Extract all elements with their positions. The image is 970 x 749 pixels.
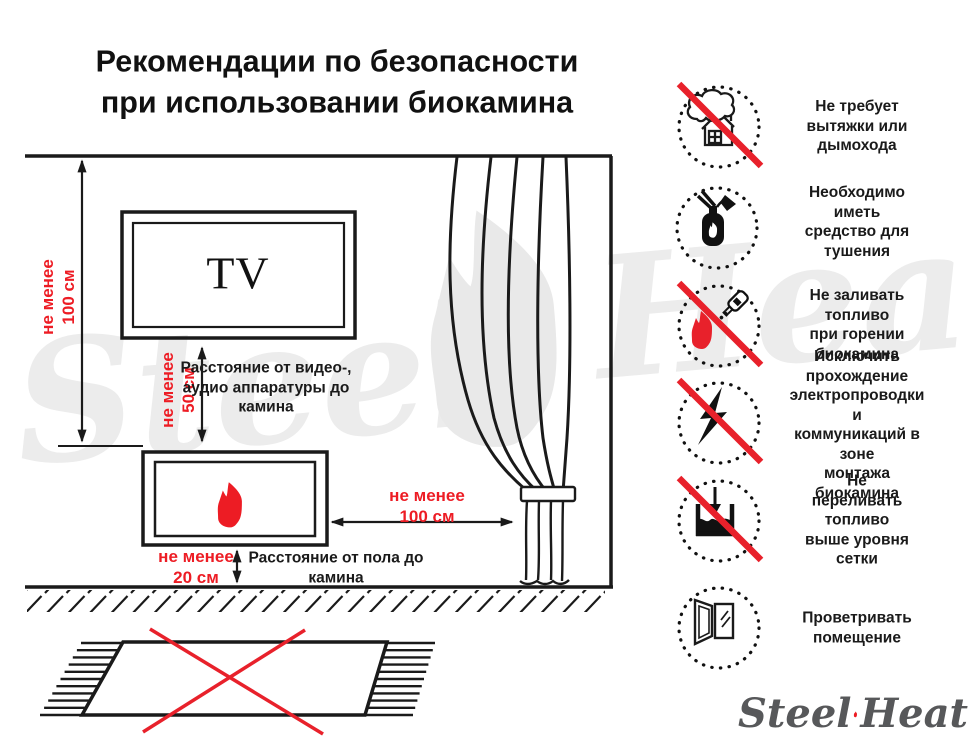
- caption-tv-distance: Расстояние от видео-, аудио аппаратуры д…: [181, 359, 352, 418]
- curtain: [450, 157, 570, 492]
- title-line-2: при использовании биокамина: [96, 82, 579, 123]
- rule-caption-no-chimney: Не требует вытяжки или дымохода: [801, 97, 914, 156]
- no-refill-while-burning-icon: [671, 278, 767, 374]
- prohibition-line: [679, 478, 761, 560]
- rule-caption-ventilate: Проветривать помещение: [802, 609, 911, 648]
- no-chimney-icon: [671, 79, 767, 175]
- logo-heat-text: Heat: [860, 694, 968, 734]
- extinguisher-icon: [669, 180, 765, 276]
- curtain-tie: [521, 487, 575, 501]
- logo-steel-text: Steel: [738, 694, 851, 734]
- title-line-1: Рекомендации по безопасности: [96, 41, 579, 82]
- rule-caption-extinguisher: Необходимо иметь средство для тушения: [801, 183, 914, 261]
- carpet-fringe-left: [40, 643, 122, 715]
- no-overfill-icon: [671, 473, 767, 569]
- prohibition-line: [679, 283, 761, 365]
- no-wiring-icon: [671, 375, 767, 471]
- logo-flame-icon: [853, 692, 858, 737]
- brand-logo: Steel Heat: [738, 684, 968, 744]
- tv-screen-label: TV: [206, 247, 269, 300]
- page-title: Рекомендации по безопасности при использ…: [96, 41, 579, 122]
- fireplace-flame-icon: [218, 482, 242, 527]
- ventilate-icon: [671, 580, 767, 676]
- caption-floor-distance: Расстояние от пола до камина: [248, 548, 423, 587]
- curtain-lower-strands: [520, 501, 569, 584]
- carpet-cross-icon: [143, 629, 323, 734]
- floor-hatching: [27, 590, 605, 612]
- safety-poster: Steel Heat Рекомендации по безопасности …: [0, 0, 970, 749]
- dim-wall-to-fireplace-label: не менее 100 см: [37, 259, 80, 335]
- dim-fireplace-to-curtain-label: не менее 100 см: [389, 485, 465, 528]
- dim-fireplace-to-floor-label: не менее 20 см: [158, 546, 234, 589]
- rule-caption-no-overfill: Не переливать топливо выше уровня сетки: [801, 471, 914, 569]
